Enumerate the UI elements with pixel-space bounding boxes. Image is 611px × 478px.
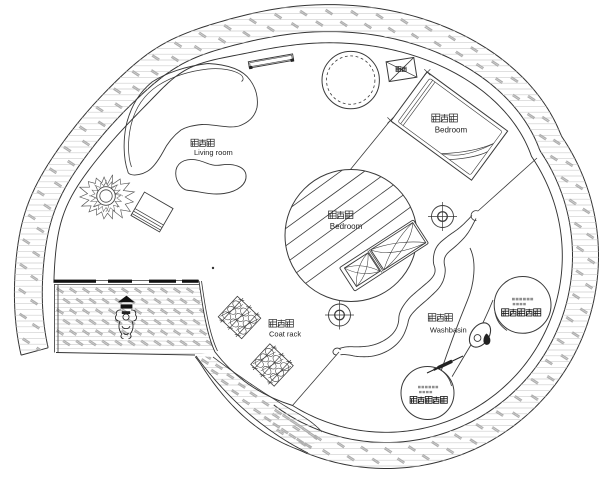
svg-text:Bedroom: Bedroom (435, 125, 468, 134)
svg-text:Washbasin: Washbasin (430, 325, 467, 334)
svg-text:Coat rack: Coat rack (269, 329, 301, 338)
svg-text:Living room: Living room (194, 148, 233, 157)
svg-text:Bedroom: Bedroom (330, 222, 363, 231)
